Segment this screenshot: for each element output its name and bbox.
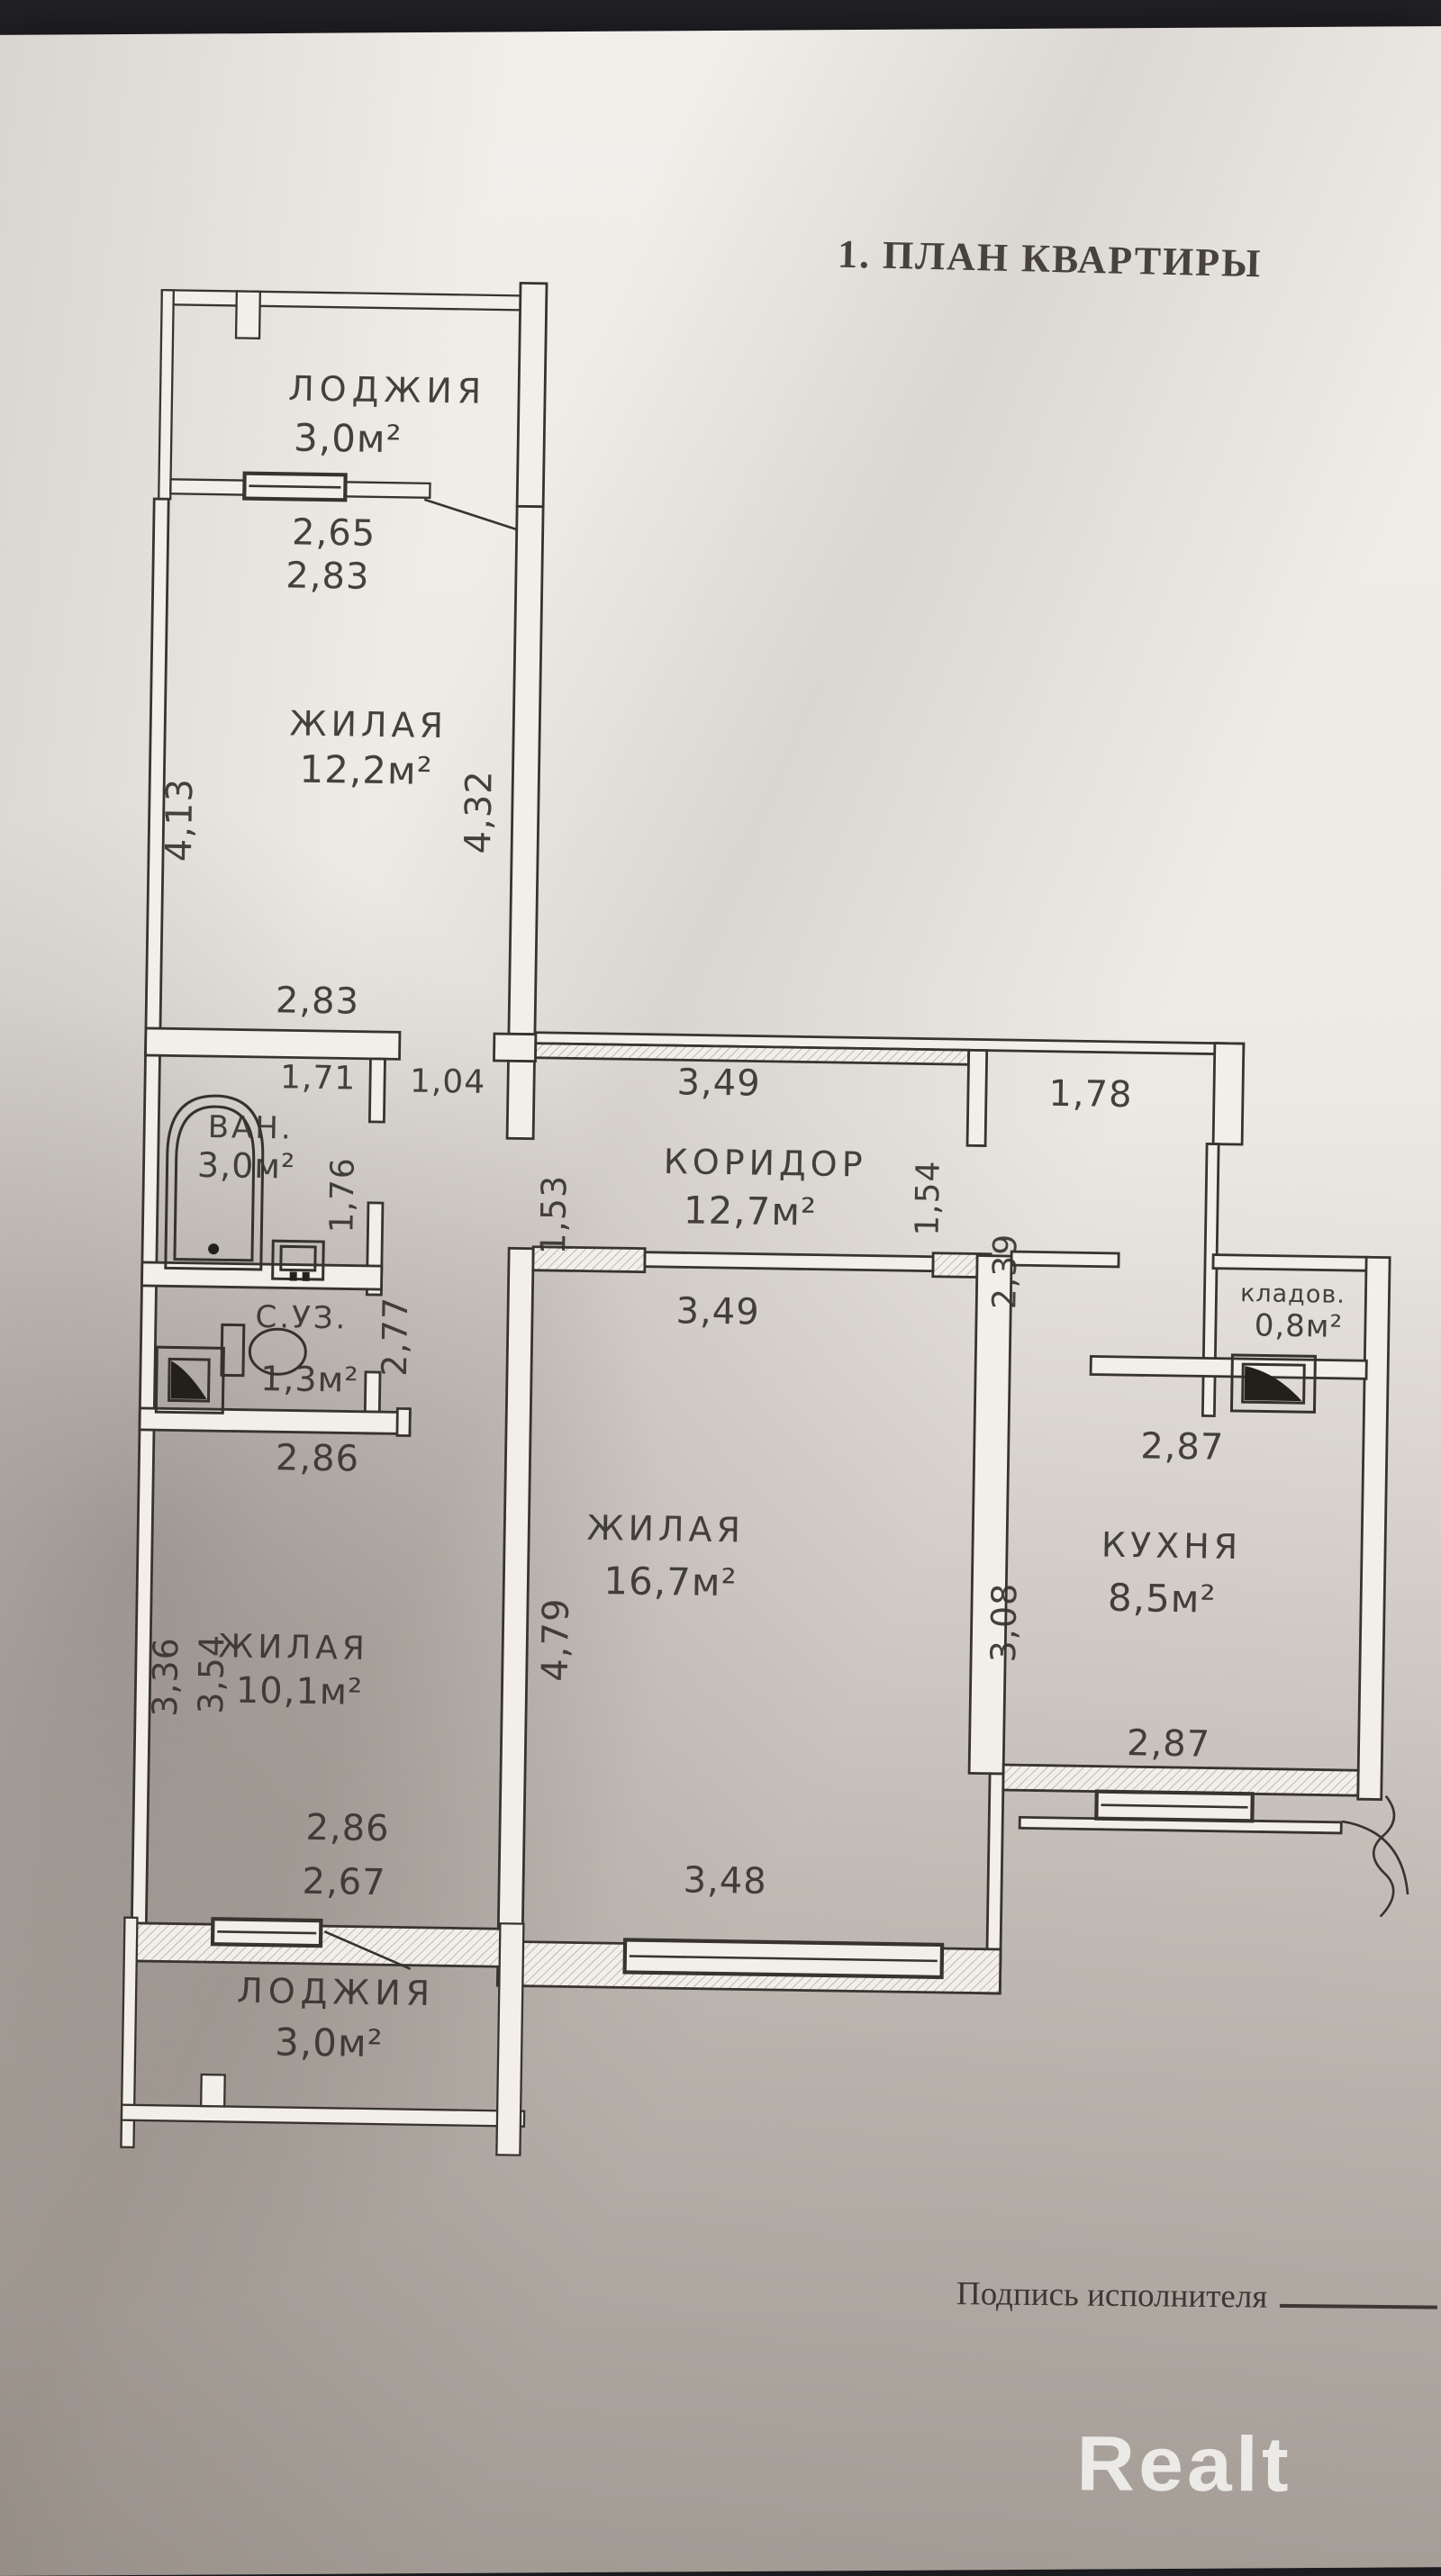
- wall-segment: [146, 1028, 400, 1059]
- dimension-label: 2,39: [986, 1234, 1024, 1310]
- dimension-label: 1,76: [323, 1157, 361, 1234]
- window-icon: [625, 1939, 943, 1977]
- room-name-label: кладов.: [1240, 1279, 1346, 1309]
- dimension-label: 1,71: [280, 1059, 357, 1097]
- dimension-label: 1,04: [410, 1063, 486, 1101]
- wall-segment: [645, 1252, 933, 1271]
- wall-segment: [236, 291, 260, 338]
- room-area-label: 16,7м²: [603, 1559, 738, 1604]
- wall-segment: [494, 1034, 535, 1062]
- room-name-label: ЖИЛАЯ: [218, 1628, 369, 1668]
- room-name-label: С.УЗ.: [255, 1299, 348, 1337]
- dimension-label: 1,53: [533, 1174, 574, 1254]
- room-area-label: 3,0м²: [197, 1145, 296, 1187]
- dimension-label: 2,65: [292, 511, 376, 554]
- wall-segment: [1213, 1255, 1368, 1271]
- window-icon: [213, 1919, 321, 1946]
- room-area-label: 1,3м²: [260, 1359, 359, 1400]
- wall-segment: [1358, 1257, 1390, 1799]
- room-area-label: 3,0м²: [294, 415, 403, 461]
- signature-label: Подпись исполнителя: [956, 2275, 1268, 2316]
- vent-shaft-icon: [156, 1347, 223, 1413]
- wall-segment: [369, 1059, 385, 1122]
- room-area-label: 0,8м²: [1254, 1307, 1343, 1345]
- realt-watermark-logo: Realt: [1076, 2419, 1292, 2509]
- room-area-label: 12,2м²: [299, 747, 433, 793]
- wall-segment: [497, 1248, 533, 1985]
- door-swing-line: [424, 500, 518, 530]
- signature-line: [1280, 2277, 1437, 2309]
- door-swing-line: [1373, 1795, 1395, 1916]
- wall-segment: [1213, 1044, 1244, 1144]
- room-name-label: ЛОДЖИЯ: [237, 1971, 436, 2013]
- dimension-label: 2,86: [305, 1807, 390, 1849]
- room-area-label: 10,1м²: [235, 1670, 363, 1713]
- dimension-label: 4,79: [535, 1597, 577, 1682]
- wall-segment: [1011, 1252, 1119, 1267]
- wall-segment: [162, 290, 547, 311]
- dimension-label: 2,86: [276, 1437, 360, 1479]
- room-name-label: ЛОДЖИЯ: [288, 368, 487, 411]
- room-name-label: ВАН.: [207, 1109, 294, 1146]
- dimension-label: 1,54: [909, 1160, 947, 1236]
- signature-row: Подпись исполнителя: [956, 2273, 1441, 2318]
- dimension-label: 2,87: [1127, 1722, 1211, 1765]
- room-area-label: 3,0м²: [275, 2020, 384, 2065]
- dimension-label: 3,48: [683, 1859, 767, 1902]
- wall-segment: [159, 290, 174, 499]
- dimension-label: 2,83: [285, 555, 370, 597]
- dimension-label: 2,83: [276, 980, 360, 1022]
- dimension-label: 2,77: [375, 1297, 415, 1377]
- scanned-floorplan-photo: { "title": "1. ПЛАН КВАРТИРЫ", "watermar…: [0, 0, 1441, 2559]
- dimension-label: 2,67: [302, 1861, 386, 1903]
- room-name-label: ЖИЛАЯ: [289, 703, 448, 746]
- room-name-label: КУХНЯ: [1101, 1525, 1243, 1567]
- room-name-label: КОРИДОР: [663, 1142, 866, 1185]
- room-name-label: ЖИЛАЯ: [586, 1508, 745, 1550]
- dimension-label: 4,13: [159, 778, 201, 863]
- wall-segment: [967, 1050, 987, 1145]
- wall-segment: [509, 506, 543, 1034]
- dimension-label: 4,32: [458, 770, 500, 854]
- dimension-label: 3,49: [676, 1062, 761, 1104]
- dimension-label: 2,87: [1140, 1425, 1225, 1468]
- room-area-label: 12,7м²: [683, 1188, 817, 1234]
- wall-segment: [397, 1408, 410, 1435]
- wall-segment: [131, 1923, 523, 1967]
- wall-segment: [1091, 1356, 1366, 1378]
- dimension-label: 3,49: [675, 1290, 760, 1333]
- wall-segment: [507, 1061, 534, 1138]
- dimension-label: 3,08: [983, 1582, 1024, 1662]
- window-icon: [244, 474, 345, 501]
- wall-segment: [969, 1255, 1011, 1774]
- floor-plan: ЛОДЖИЯ3,0м²2,652,83ЖИЛАЯ12,2м²4,134,322,…: [0, 0, 1441, 2559]
- dimension-label: 3,54: [191, 1634, 231, 1714]
- dimension-label: 1,78: [1048, 1073, 1133, 1116]
- wall-segment: [122, 2105, 524, 2127]
- wall-segment: [496, 1923, 523, 2155]
- room-area-label: 8,5м²: [1108, 1576, 1217, 1622]
- wall-segment: [201, 2074, 225, 2106]
- dimension-label: 3,36: [145, 1637, 186, 1717]
- window-icon: [1096, 1792, 1252, 1821]
- wall-segment: [517, 283, 547, 506]
